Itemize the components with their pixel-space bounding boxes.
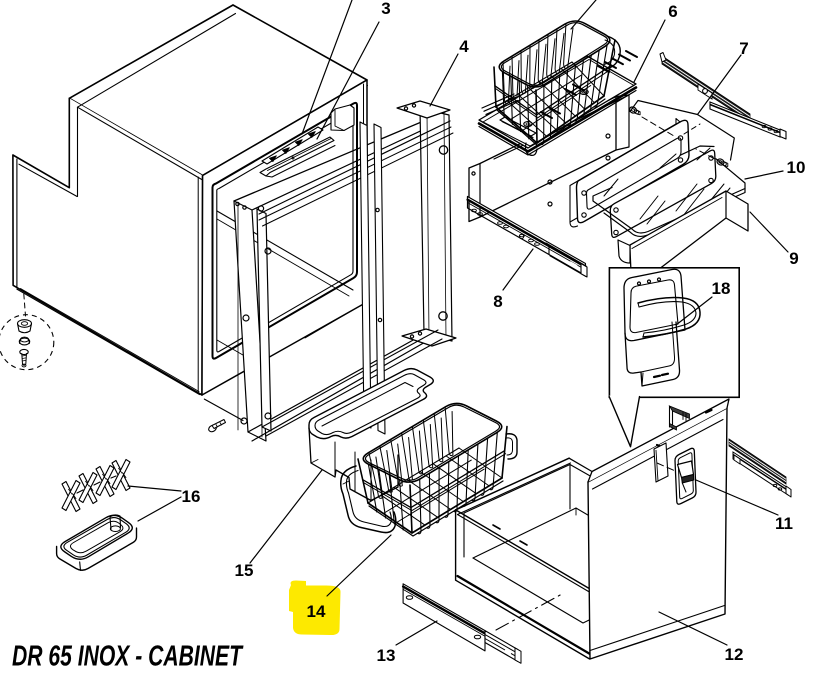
svg-text:10: 10	[787, 158, 806, 177]
svg-text:8: 8	[493, 292, 502, 311]
svg-text:18: 18	[712, 279, 731, 298]
svg-text:9: 9	[789, 249, 798, 268]
svg-text:7: 7	[739, 39, 748, 58]
svg-text:DR 65 INOX - CABINET: DR 65 INOX - CABINET	[12, 641, 244, 673]
svg-text:6: 6	[668, 2, 677, 21]
svg-text:4: 4	[459, 37, 469, 56]
svg-text:13: 13	[377, 646, 396, 665]
svg-text:3: 3	[381, 0, 390, 18]
svg-text:12: 12	[725, 645, 744, 664]
svg-text:16: 16	[182, 487, 201, 506]
svg-text:11: 11	[775, 514, 793, 533]
svg-text:14: 14	[307, 602, 326, 621]
svg-text:15: 15	[235, 561, 254, 580]
